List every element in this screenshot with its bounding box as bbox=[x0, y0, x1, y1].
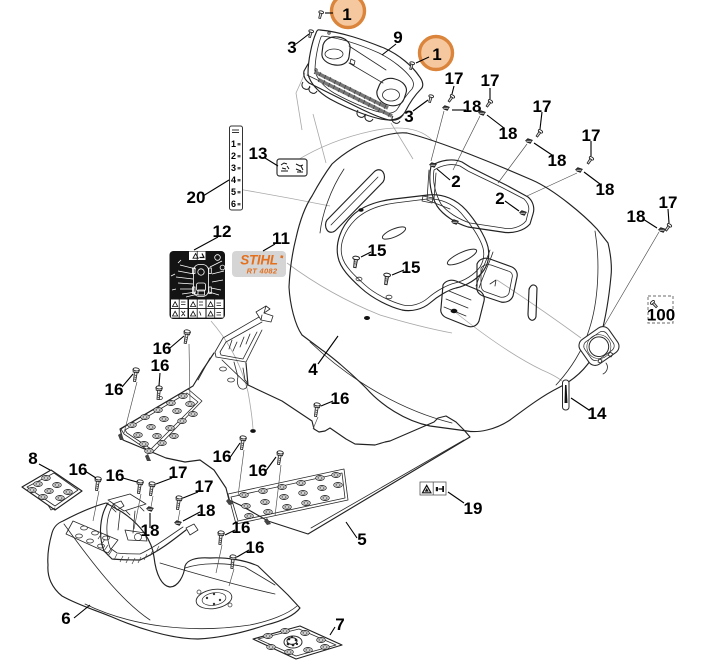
svg-text:17: 17 bbox=[481, 71, 500, 90]
svg-text:3: 3 bbox=[404, 107, 413, 126]
svg-text:17: 17 bbox=[169, 463, 188, 482]
svg-text:19: 19 bbox=[464, 499, 483, 518]
svg-text:17: 17 bbox=[659, 193, 678, 212]
svg-text:5: 5 bbox=[357, 530, 366, 549]
svg-text:100: 100 bbox=[647, 306, 675, 325]
svg-text:2: 2 bbox=[495, 189, 504, 208]
svg-text:18: 18 bbox=[499, 124, 518, 143]
svg-text:3: 3 bbox=[231, 163, 236, 173]
svg-text:11: 11 bbox=[272, 229, 290, 248]
svg-text:4: 4 bbox=[231, 175, 236, 185]
svg-text:STIHL: STIHL bbox=[240, 253, 278, 268]
svg-text:1: 1 bbox=[231, 139, 236, 149]
svg-text:16: 16 bbox=[213, 447, 232, 466]
svg-text:16: 16 bbox=[232, 518, 251, 537]
svg-text:12: 12 bbox=[213, 222, 232, 241]
svg-text:15: 15 bbox=[402, 258, 421, 277]
svg-text:18: 18 bbox=[197, 501, 216, 520]
svg-text:16: 16 bbox=[105, 380, 124, 399]
svg-text:14: 14 bbox=[588, 404, 607, 423]
svg-text:17: 17 bbox=[533, 97, 552, 116]
svg-text:3: 3 bbox=[287, 38, 296, 57]
svg-text:18: 18 bbox=[463, 97, 482, 116]
svg-text:8: 8 bbox=[28, 449, 37, 468]
svg-text:1: 1 bbox=[342, 5, 351, 24]
svg-text:2: 2 bbox=[451, 172, 460, 191]
svg-text:6: 6 bbox=[231, 199, 236, 209]
svg-text:9: 9 bbox=[393, 28, 402, 47]
svg-text:4: 4 bbox=[308, 360, 318, 379]
svg-text:RT 4082: RT 4082 bbox=[247, 267, 278, 276]
svg-text:16: 16 bbox=[151, 356, 170, 375]
svg-text:16: 16 bbox=[69, 460, 88, 479]
svg-text:16: 16 bbox=[106, 466, 125, 485]
svg-text:13: 13 bbox=[249, 144, 268, 163]
svg-text:18: 18 bbox=[596, 180, 615, 199]
svg-text:16: 16 bbox=[246, 538, 265, 557]
svg-text:20: 20 bbox=[187, 188, 206, 207]
svg-text:2: 2 bbox=[231, 151, 236, 161]
svg-text:18: 18 bbox=[627, 207, 646, 226]
svg-text:17: 17 bbox=[195, 477, 214, 496]
svg-text:17: 17 bbox=[582, 126, 601, 145]
svg-text:6: 6 bbox=[61, 609, 70, 628]
svg-text:16: 16 bbox=[331, 389, 350, 408]
svg-text:17: 17 bbox=[445, 69, 464, 88]
svg-text:1: 1 bbox=[432, 45, 441, 64]
svg-text:18: 18 bbox=[141, 521, 160, 540]
svg-text:5: 5 bbox=[231, 187, 236, 197]
svg-text:16: 16 bbox=[249, 461, 268, 480]
svg-text:7: 7 bbox=[335, 615, 344, 634]
svg-text:15: 15 bbox=[368, 241, 387, 260]
svg-text:18: 18 bbox=[548, 151, 567, 170]
